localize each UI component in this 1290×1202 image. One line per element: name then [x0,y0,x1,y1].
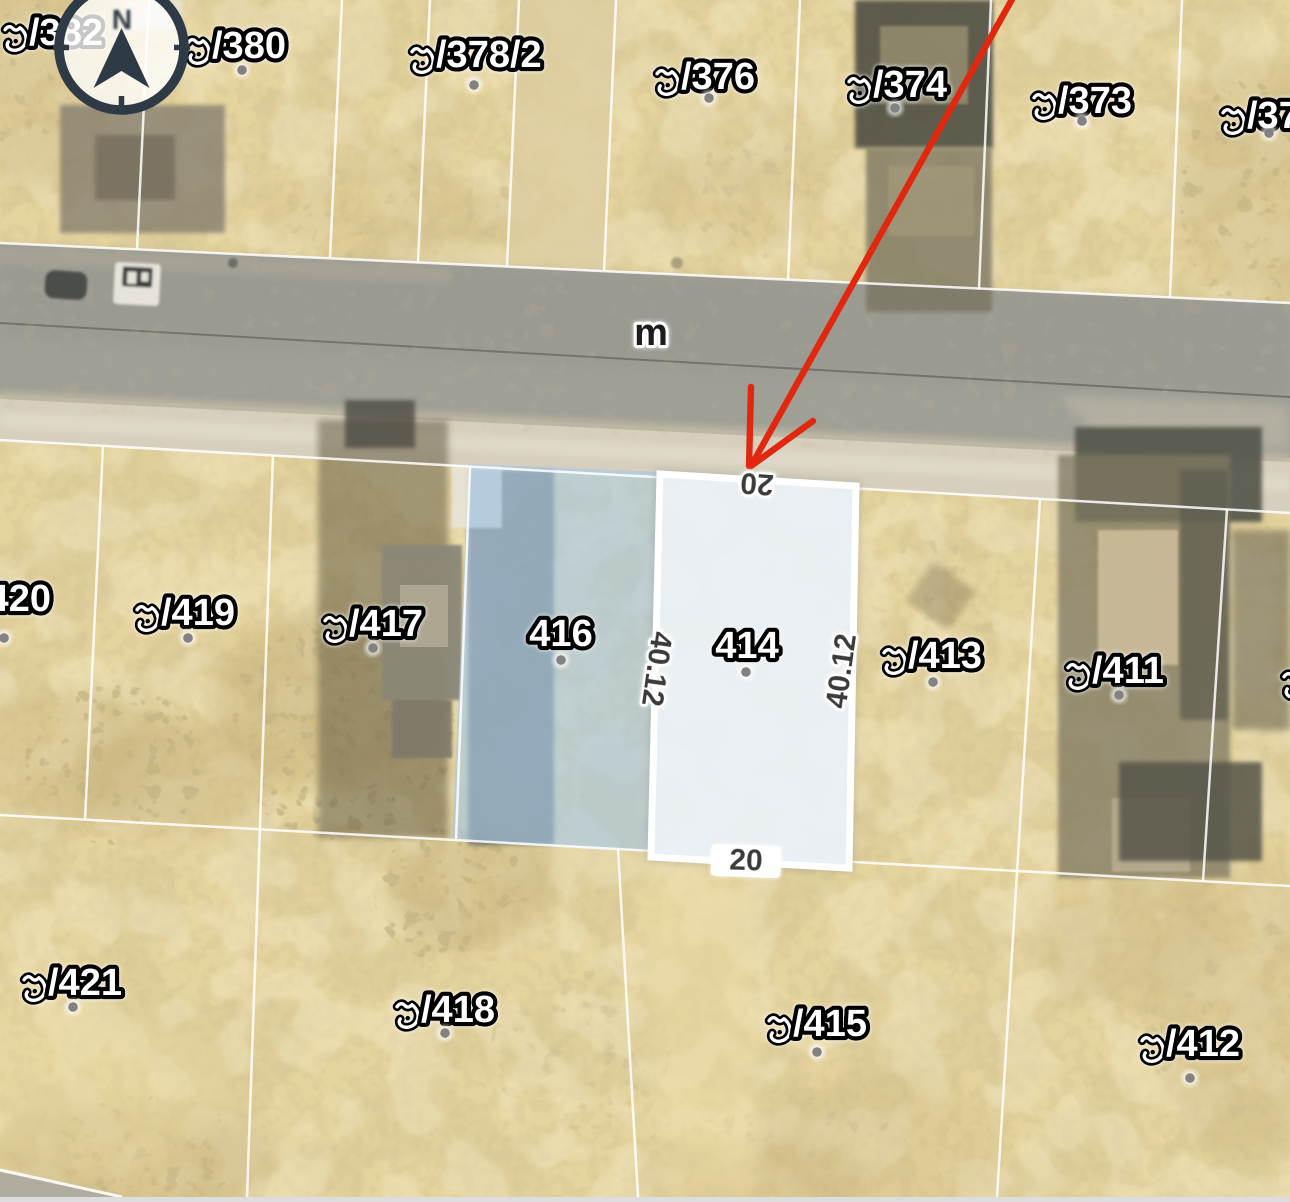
svg-text:20: 20 [729,843,764,877]
svg-text:416: 416 [529,613,592,655]
svg-text:/373: /373 [1058,80,1132,122]
svg-text:/420: /420 [0,578,51,620]
svg-text:20: 20 [739,466,775,501]
svg-text:414: 414 [715,625,778,667]
svg-text:/374: /374 [873,64,947,106]
svg-text:/412: /412 [1166,1023,1240,1065]
svg-text:/419: /419 [161,592,235,634]
svg-text:/418: /418 [421,989,495,1031]
svg-text:/380: /380 [212,25,286,67]
svg-text:/376: /376 [681,56,755,98]
svg-text:/413: /413 [908,635,982,677]
svg-text:/411: /411 [1092,650,1164,692]
svg-text:/421: /421 [48,962,122,1004]
svg-text:m: m [634,312,668,354]
svg-text:/378/2: /378/2 [436,34,542,76]
svg-text:/417: /417 [349,603,423,645]
svg-text:/415: /415 [793,1003,867,1045]
svg-text:N: N [112,4,132,35]
